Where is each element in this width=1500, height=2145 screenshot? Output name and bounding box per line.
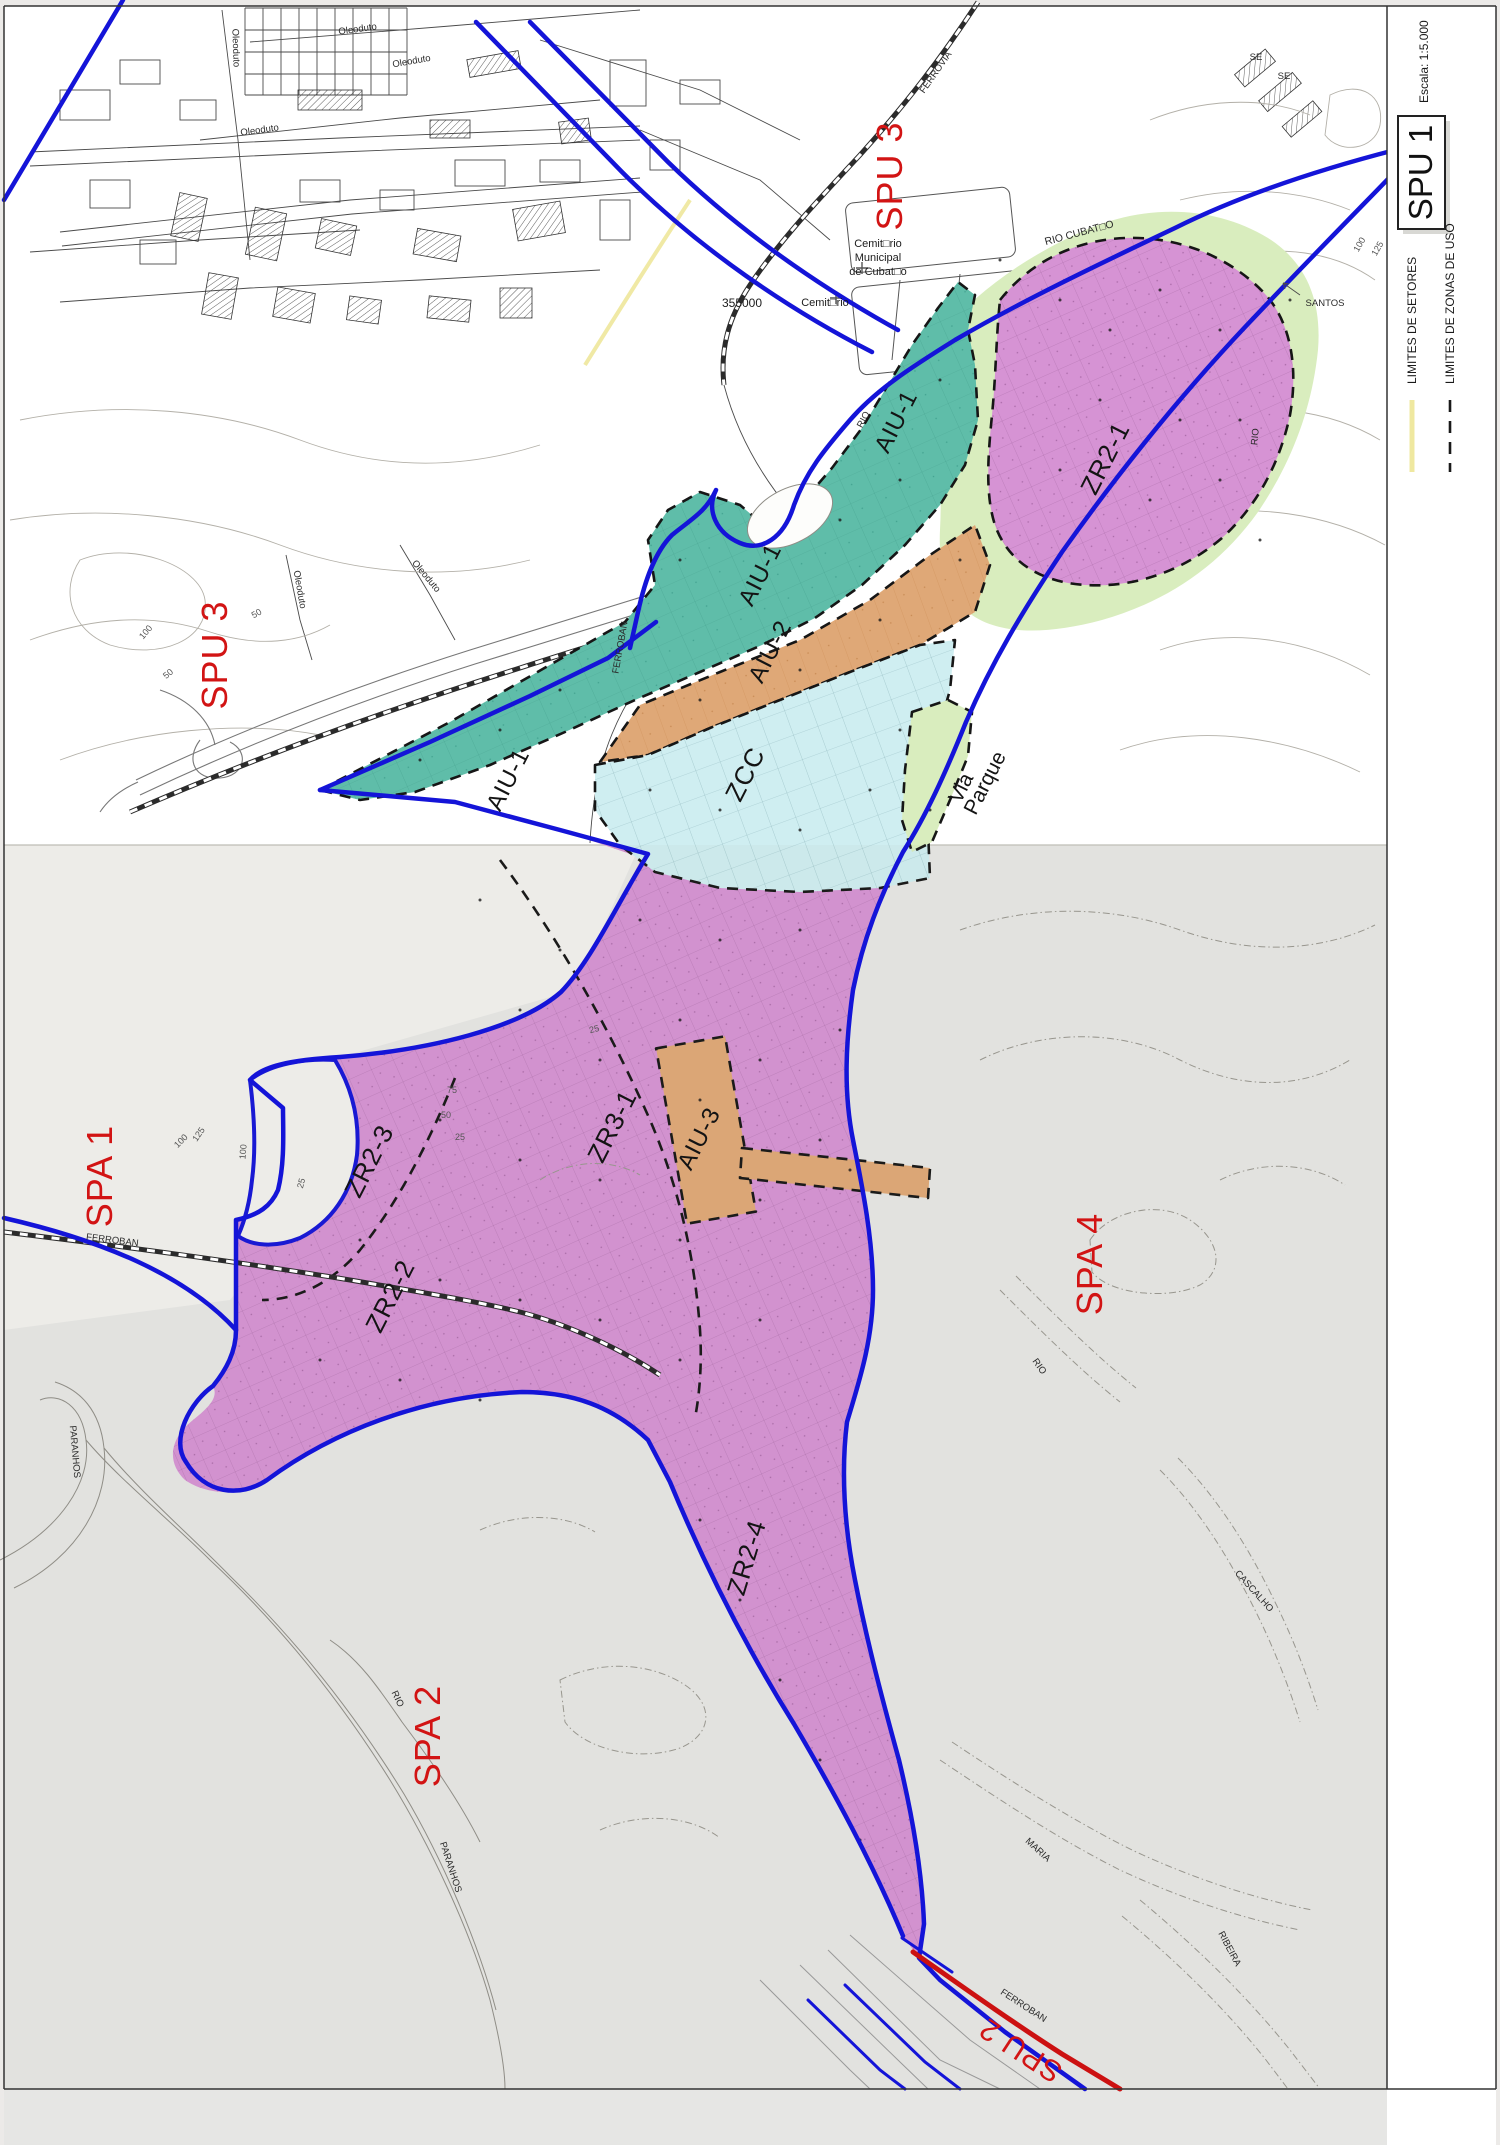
label-sector-spu3-top: SPU 3 — [869, 121, 910, 230]
label-sector-spa1: SPA 1 — [79, 1125, 120, 1227]
label-rio-b: RIO — [1249, 428, 1261, 446]
label-se-1: SE — [1250, 52, 1263, 63]
label-santos: SANTOS — [1306, 298, 1345, 309]
legend-scale-text: Escala: 1:5.000 — [1417, 20, 1431, 103]
zoning-map-svg: Cemit□rio Municipal de Cubat□o Cemit□rio… — [0, 0, 1500, 2145]
sheet-code-text: SPU 1 — [1402, 125, 1439, 220]
label-cemiterio-line3: de Cubat□o — [849, 266, 906, 278]
legend-item-setores-label: LIMITES DE SETORES — [1405, 257, 1419, 384]
label-coord-355000: 355000 — [722, 296, 762, 310]
label-sector-spa2: SPA 2 — [407, 1685, 448, 1787]
label-contour-50c: 50 — [441, 1110, 451, 1120]
label-se-2: SE — [1278, 71, 1291, 82]
label-contour-25c: 25 — [455, 1132, 465, 1142]
label-sector-spu3-left: SPU 3 — [194, 600, 235, 709]
label-oleoduto-1: Oleoduto — [229, 28, 241, 67]
map-sheet: Cemit□rio Municipal de Cubat□o Cemit□rio… — [0, 0, 1500, 2145]
label-cemiterio-line2: Municipal — [855, 252, 901, 264]
sheet-seam-tint — [4, 845, 1387, 2089]
label-contour-75a: 75 — [447, 1085, 457, 1095]
label-sector-spa4: SPA 4 — [1069, 1213, 1110, 1315]
label-contour-100d: 100 — [237, 1144, 248, 1160]
label-cemiterio2: Cemit□rio — [801, 297, 849, 309]
legend-item-zonas-label: LIMITES DE ZONAS DE USO — [1443, 223, 1457, 384]
label-cemiterio-line1: Cemit□rio — [854, 238, 902, 250]
legend-column: Escala: 1:5.000 SPU 1 LIMITES DE SETORES… — [1387, 6, 1496, 2145]
